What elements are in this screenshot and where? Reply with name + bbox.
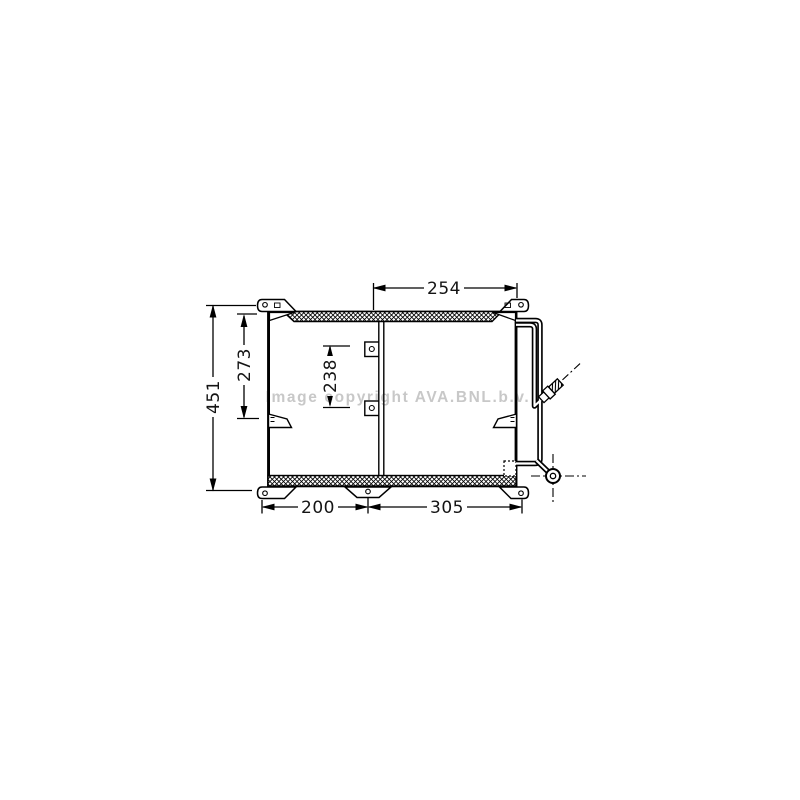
bracket-bottom-center-hole [366, 489, 371, 494]
condenser-core [268, 312, 517, 487]
dim-label-305: 305 [430, 498, 464, 518]
dim-label-451: 451 [204, 380, 224, 414]
bracket-top-right [500, 300, 529, 312]
bracket-top-right-hole [519, 303, 524, 308]
top-header-bar [283, 312, 502, 322]
condenser-technical-drawing: 451 273 238 254 200 305 Image copyright … [0, 0, 800, 800]
threaded-fitting [538, 359, 585, 404]
dim-label-200: 200 [301, 498, 335, 518]
bracket-bottom-right-hole [519, 491, 524, 496]
bottom-header-bar [268, 476, 516, 487]
hidden-bracket-dotted [504, 461, 516, 476]
bracket-bottom-right [500, 487, 529, 499]
core-outline [268, 312, 517, 487]
port-inner-circle [550, 473, 555, 478]
bracket-top-left-hole [263, 303, 268, 308]
drawing-canvas: 451 273 238 254 200 305 [0, 0, 800, 800]
dim-label-254: 254 [427, 279, 461, 299]
dim-label-238: 238 [321, 359, 341, 393]
dim-label-273: 273 [235, 348, 255, 382]
divider-tab-upper-hole [369, 347, 374, 352]
divider-tab-lower-hole [369, 406, 374, 411]
bracket-bottom-left-hole [263, 491, 268, 496]
fitting-centerline [562, 363, 580, 380]
